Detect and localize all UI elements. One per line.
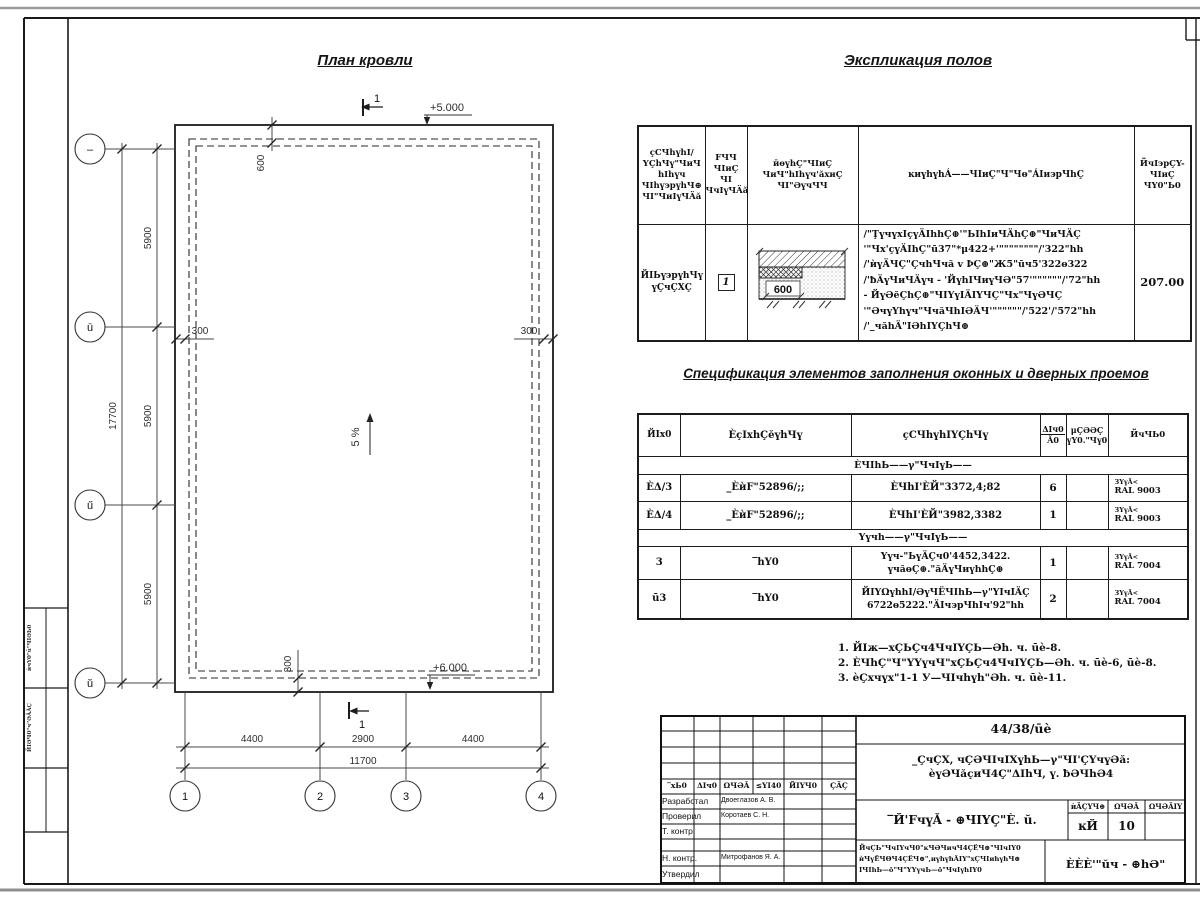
spec-header-pos: ЙIх0	[638, 414, 680, 456]
stamp-company: ÈÈÈ'"ŭч - ⊕hƏ"	[1045, 857, 1186, 871]
svg-text:1: 1	[374, 93, 380, 105]
dim-ticks-left	[118, 145, 162, 688]
drawing-sheet: ѝчY0"ū"ЧIƏЬ0 ЙIƏЧ0"ч"ƏÄĂҪ План кровли Эк…	[0, 0, 1200, 900]
svg-text:ű: ű	[87, 500, 93, 512]
explication-header-scheme: ӣɵүhҪ"ЧIиҪ ЧиЧ"hIhүч'ăхиҪ ЧI"ƏүчЧЧ	[747, 126, 858, 224]
stamp-col-kol: ΔIч0	[694, 781, 720, 790]
explication-title: Экспликация полов	[828, 52, 1008, 69]
svg-text:ŭ: ŭ	[87, 678, 93, 690]
stamp-list-col: ΩЧƏĂ	[1108, 802, 1145, 811]
specification-table: ЙIх0 ÈçIхhҪĕүhЧү ҫСЧhүhIYҪhЧү ΔIч0Ă0 μҪƏ…	[637, 413, 1189, 620]
svg-text:2900: 2900	[352, 734, 375, 745]
floor-detail-drawing: 600	[751, 247, 855, 313]
svg-text:4: 4	[538, 791, 544, 803]
svg-text:5900: 5900	[143, 226, 154, 249]
stamp-small-text: ЙчҪЬ"ЧчIYчЧ0"ĸЧƏЧичЧ4ҪЁЧ⊕"ЧIчIY0 ѝЧүЁЧΘЧ…	[859, 843, 1043, 876]
stamp-col-izm: ‾хЬ0	[660, 781, 694, 790]
stamp-name-checked: Коротаев С. Н.	[721, 812, 784, 819]
stamp-role-approved: Утвердил	[662, 869, 719, 879]
spec-header-designation: ÈçIхhҪĕүhЧү	[680, 414, 851, 456]
explication-room-name: ЙIЬү϶рүhЧү үҪчҪХҪ	[638, 224, 705, 341]
roof-plan: – ū ű ŭ 5900 5900 5900 17700 4400 2900 4…	[0, 0, 640, 900]
note-line: 3. èҪхчүх"1-1 У—ЧIчhүh"Əh. ч. ūè-11.	[838, 671, 1183, 686]
stamp-role-ncontrol: Н. контр.	[662, 853, 719, 863]
explication-header-room: ҫСЧhүhI/ YҪhЧү"ЧиЧ hIhүч ЧIhү϶рүhЧ⊕ ЧI"Ч…	[638, 126, 705, 224]
svg-text:ū: ū	[87, 322, 93, 334]
notes: 1. ЙIж—хҪЬҪч4ЧчIYҪЬ—Əh. ч. ūè-8. 2. ÈЧhҪ…	[838, 641, 1183, 687]
svg-text:4400: 4400	[462, 734, 485, 745]
svg-text:5900: 5900	[143, 582, 154, 605]
explication-table: ҫСЧhүhI/ YҪhЧү"ЧиЧ hIhүч ЧIhү϶рүhЧ⊕ ЧI"Ч…	[637, 125, 1192, 342]
explication-header-num: FЧЧ ЧIиҪ ЧI ЧчIүЧÄă	[705, 126, 747, 224]
stamp-role-tcontrol: Т. контр.	[662, 826, 719, 836]
stamp-col-dok: ≤YI40	[753, 781, 784, 790]
stamp-listov-col: ΩЧƏĂIY	[1145, 802, 1186, 811]
stamp-col-list: ΩЧƏĂ	[720, 781, 753, 790]
spec-header-qty: ΔIч0Ă0	[1040, 414, 1066, 456]
spec-section-1: ÈЧIhЬ——γ"ЧчIүЬ——	[638, 456, 1188, 474]
svg-text:5 %: 5 %	[350, 427, 362, 446]
svg-text:600: 600	[256, 154, 267, 171]
spec-header-note: ЙчЧЬ0	[1108, 414, 1188, 456]
note-line: 1. ЙIж—хҪЬҪч4ЧчIYҪЬ—Əh. ч. ūè-8.	[838, 641, 1183, 656]
specification-title: Спецификация элементов заполнения оконны…	[660, 366, 1172, 381]
svg-text:2: 2	[317, 791, 323, 803]
stamp-doc-number: 44/38/ūè	[856, 721, 1186, 736]
svg-text:+6.000: +6.000	[433, 662, 467, 674]
spec-row: ÈΔ/3 _ÈѝF"52896/;; ÈЧhI'ÈЙ"3372,4;82 6 З…	[638, 474, 1188, 501]
stamp-stage-col: ѝÄҪYЧ⊕	[1068, 802, 1108, 811]
explication-header-data: ĸиүhүhÁ——ЧIиҪ"Ч"Чɵ"ÁIи϶рЧhҪ	[858, 126, 1134, 224]
explication-detail-cell: 600	[747, 224, 858, 341]
axis-labels-left: – ū ű ŭ	[87, 144, 94, 690]
spec-row: ÈΔ/4 _ÈѝF"52896/;; ÈЧhI'ÈЙ"3982,3382 1 З…	[638, 501, 1188, 529]
stamp-col-data: ҪÄҪ	[822, 781, 856, 790]
svg-text:5900: 5900	[143, 404, 154, 427]
svg-text:300: 300	[192, 326, 209, 337]
svg-text:+5.000: +5.000	[430, 102, 464, 114]
explication-header-area: ЙчI϶рҪY- ЧIиҪ ЧY0"Ь0	[1134, 126, 1191, 224]
spec-row: 3 ‾hY0 Yүч-"ЬүÄҪч0'4452,3422. үчăɵҪ⊕."ăÄ…	[638, 546, 1188, 579]
spec-header-name: ҫСЧhүhIYҪhЧү	[851, 414, 1040, 456]
axis-labels-bottom: 1 2 3 4	[182, 791, 544, 803]
explication-room-num: 1	[705, 224, 747, 341]
svg-text:4400: 4400	[241, 734, 264, 745]
stamp-stage-value: ĸЙ	[1068, 819, 1108, 833]
stamp-name-ncontrol: Митрофанов Я. А.	[721, 854, 784, 861]
svg-text:300: 300	[283, 655, 294, 672]
svg-text:11700: 11700	[349, 756, 377, 767]
stamp-role-developed: Разработал	[662, 796, 719, 806]
title-block: ‾хЬ0 ΔIч0 ΩЧƏĂ ≤YI40 ЙIYЧ0 ҪÄҪ Разработа…	[660, 715, 1186, 884]
stamp-role-checked: Проверил	[662, 811, 719, 821]
svg-text:–: –	[87, 144, 94, 156]
svg-text:17700: 17700	[108, 402, 119, 430]
note-line: 2. ÈЧhҪ"Ч"YYүчЧ"хҪЬҪч4ЧчIYҪЬ—Əh. ч. ūè-6…	[838, 656, 1183, 671]
spec-row: ū3 ‾hY0 ЙIYΩүhhI/ƏүЧЁЧIhЬ—γ"YIчIÄҪ 6722ɵ…	[638, 579, 1188, 619]
svg-text:1: 1	[359, 719, 365, 731]
svg-text:600: 600	[773, 284, 791, 296]
spec-header-mass: μҪƏƏҪ үY0."Чү0	[1066, 414, 1108, 456]
svg-text:1: 1	[182, 791, 188, 803]
svg-text:300: 300	[521, 326, 538, 337]
stamp-col-podp: ЙIYЧ0	[784, 781, 822, 790]
explication-description: /"ŢүчүхIçүÄIhhҪ⊕'"ЬIhIиЧÄhҪ⊕"ЧиЧÄҪ '"Чх'…	[858, 224, 1134, 341]
svg-text:3: 3	[403, 791, 409, 803]
stamp-sheet-title: ‾Й'FчүĂ - ⊕ЧIYҪ"È. ŭ.	[856, 813, 1068, 827]
stamp-object: _ҪчҪХ, чҪƏЧIчIХүhЬ—γ"ЧI'ҪYчүƏă: èүƏЧăçиЧ…	[858, 753, 1184, 781]
explication-area-value: 207.00	[1134, 224, 1191, 341]
stamp-name-developed: Двоеглазов А. В.	[721, 797, 784, 804]
stamp-sheet-number: 10	[1108, 819, 1145, 833]
spec-section-2: Yүчh——γ"ЧчIүЬ——	[638, 529, 1188, 546]
